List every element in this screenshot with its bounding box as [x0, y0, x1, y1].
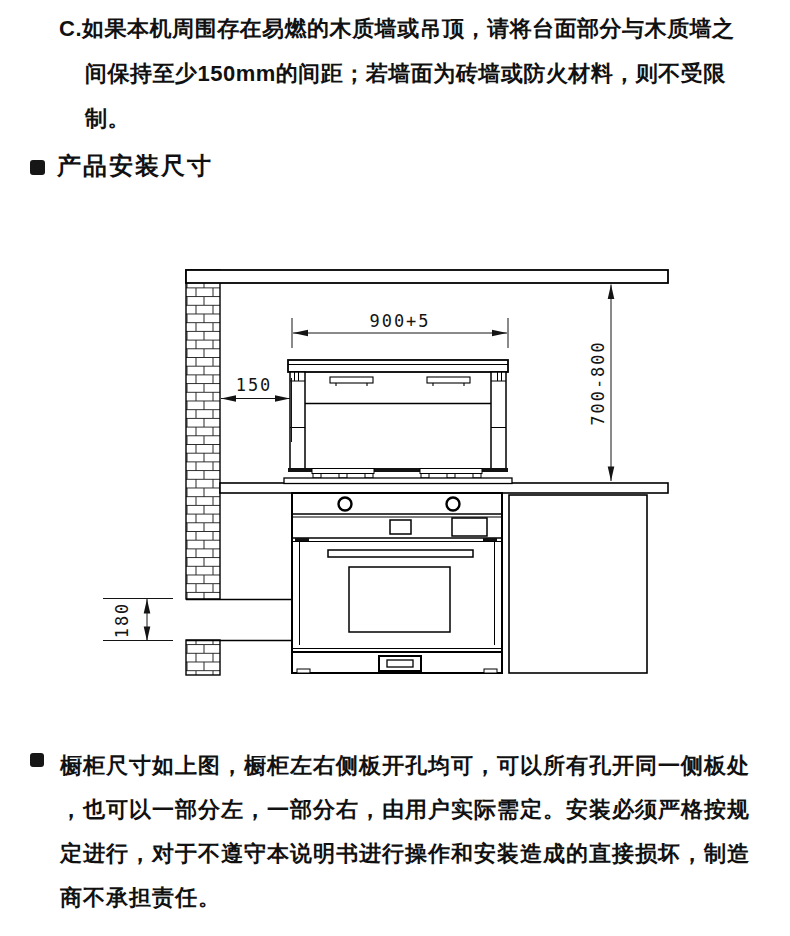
- note-line: ，也可以一部分左，一部分右，由用户实际需定。安装必须严格按规: [60, 788, 775, 832]
- square-bullet-icon: [30, 753, 44, 767]
- cooktop: [284, 468, 512, 484]
- hood-handle-slots: [330, 377, 470, 386]
- note-line: 制。: [85, 96, 775, 141]
- note-line: 间保持至少150mm的间距；若墙面为砖墙或防火材料，则不受限: [85, 51, 775, 96]
- installation-dimension-diagram: 900+5 150 700-800: [0, 240, 790, 710]
- display-window: [452, 518, 487, 536]
- note-line: 定进行，对于不遵守本说明书进行操作和安装造成的直接损坏，制造: [60, 832, 775, 876]
- countertop: [220, 483, 668, 493]
- oven-door-window: [349, 567, 450, 632]
- square-bullet-icon: [30, 160, 45, 175]
- burner-grate: [312, 469, 374, 479]
- manual-page: C.如果本机周围存在易燃的木质墙或吊顶，请将台面部分与木质墙之 间保持至少150…: [0, 0, 790, 936]
- note-line: 商不承担责任。: [60, 876, 775, 920]
- note-line: C.如果本机周围存在易燃的木质墙或吊顶，请将台面部分与木质墙之: [85, 6, 775, 51]
- dimension-label-wall-clearance: 150: [236, 375, 273, 395]
- dimension-wall-clearance: 150: [221, 375, 292, 442]
- oven-door-handle: [328, 550, 473, 557]
- dimension-hood-width: 900+5: [292, 311, 508, 348]
- burner-grate: [420, 469, 482, 479]
- plinth-band: [185, 600, 292, 641]
- range-hood-unit: [288, 360, 508, 469]
- cabinet-size-note: 橱柜尺寸如上图，橱柜左右侧板开孔均可，可以所有孔开同一侧板处 ，也可以一部分左，…: [60, 744, 775, 920]
- section-title: 产品安装尺寸: [57, 150, 213, 182]
- control-button: [390, 520, 411, 534]
- note-line: 橱柜尺寸如上图，橱柜左右侧板开孔均可，可以所有孔开同一侧板处: [60, 744, 775, 788]
- wall-clearance-note: C.如果本机周围存在易燃的木质墙或吊顶，请将台面部分与木质墙之 间保持至少150…: [85, 6, 775, 141]
- dimension-label-height-range: 700-800: [588, 340, 608, 426]
- right-base-cabinet: [509, 495, 647, 673]
- dimension-plinth-height: 180: [103, 599, 173, 642]
- dimension-label-plinth-height: 180: [112, 602, 132, 639]
- dimension-label-hood-width: 900+5: [369, 311, 430, 331]
- oven-unit: [292, 493, 502, 673]
- dimension-height-range: 700-800: [588, 285, 614, 482]
- upper-shelf: [186, 270, 668, 283]
